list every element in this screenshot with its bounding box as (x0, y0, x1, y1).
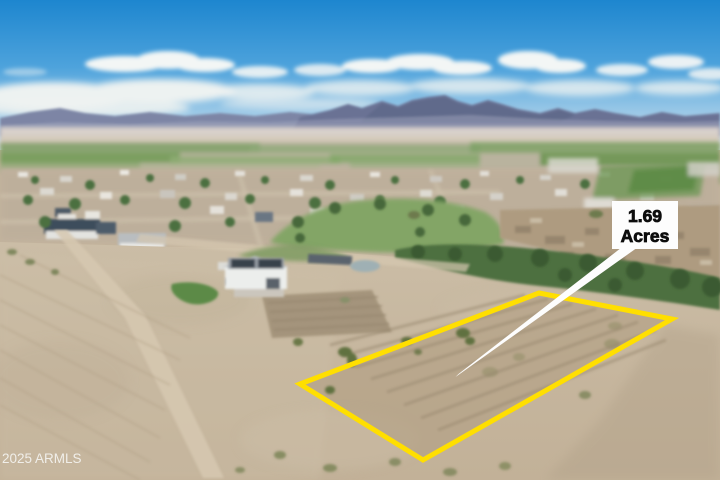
svg-text:2025 ARMLS: 2025 ARMLS (2, 451, 82, 466)
svg-text:Acres: Acres (621, 226, 670, 246)
svg-text:1.69: 1.69 (628, 206, 662, 226)
